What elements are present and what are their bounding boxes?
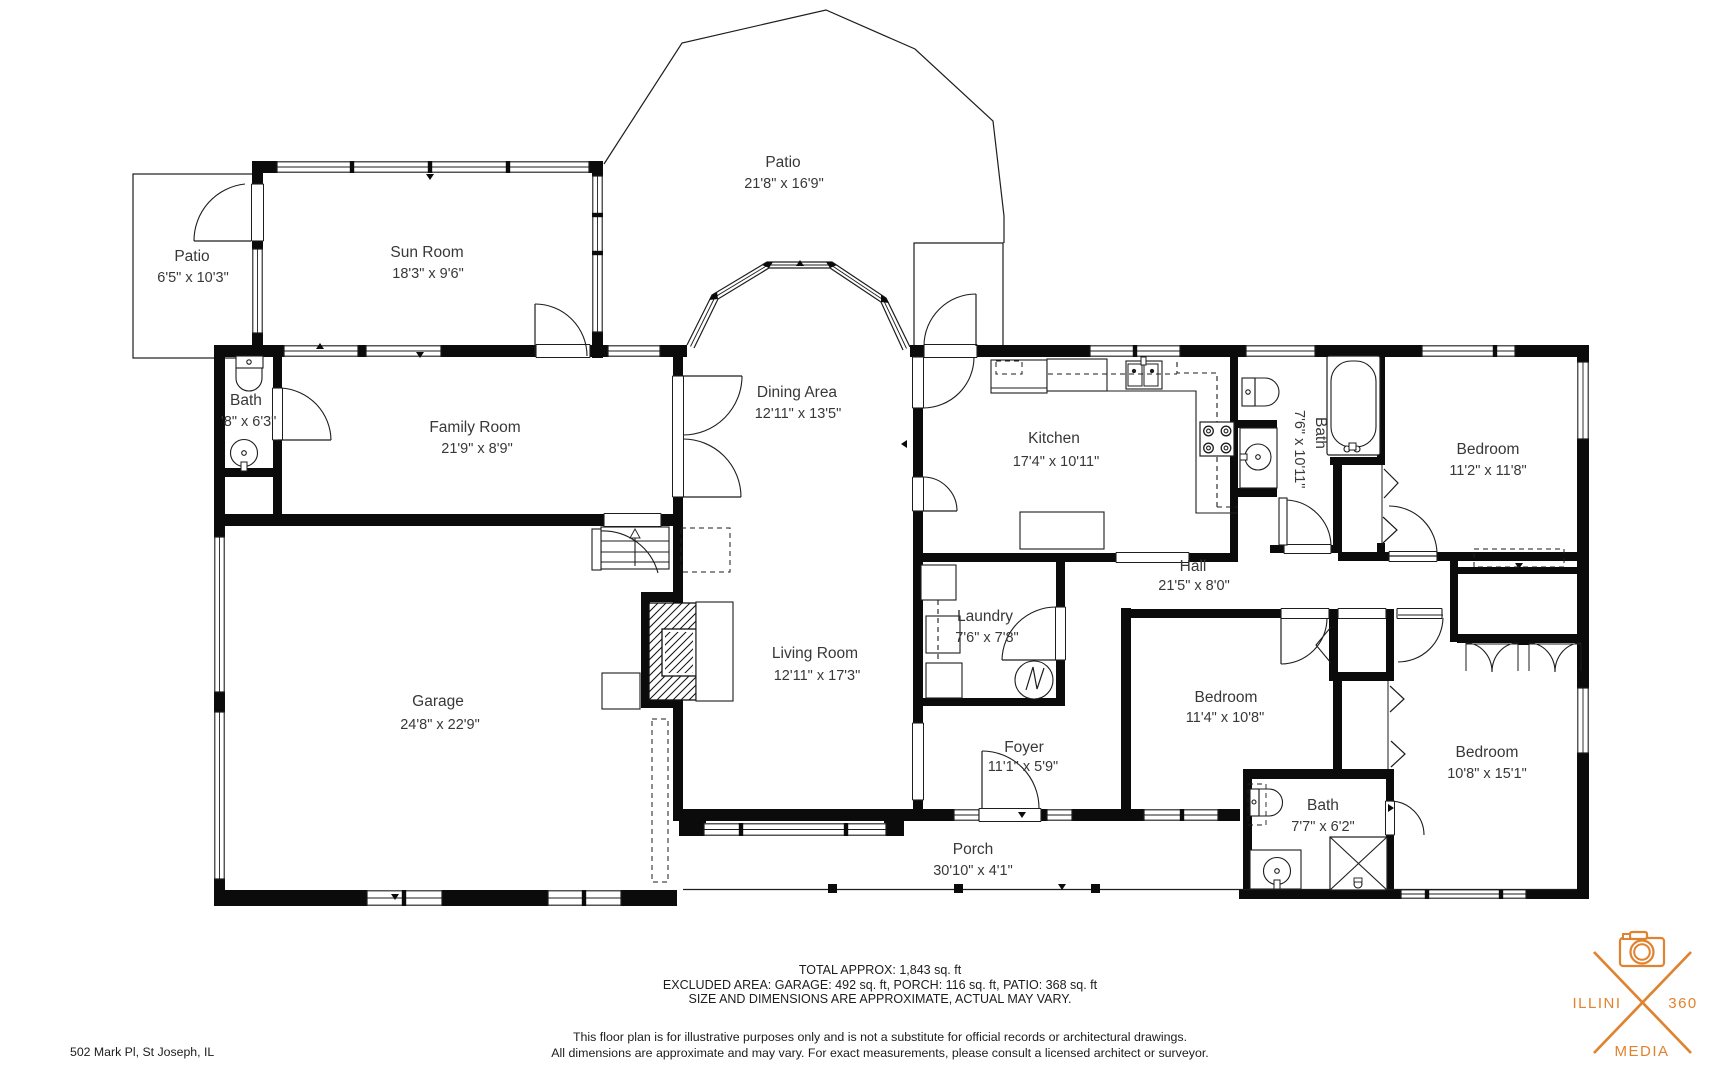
svg-text:6'5" x 10'3": 6'5" x 10'3" <box>157 270 228 286</box>
svg-text:Sun Room: Sun Room <box>390 244 463 261</box>
svg-text:TOTAL APPROX: 1,843 sq. ft: TOTAL APPROX: 1,843 sq. ft <box>799 963 962 977</box>
svg-text:18'3" x 9'6": 18'3" x 9'6" <box>392 266 463 282</box>
svg-text:'8" x 6'3": '8" x 6'3" <box>221 414 276 430</box>
svg-text:7'7" x 6'2": 7'7" x 6'2" <box>1291 819 1354 835</box>
svg-text:Patio: Patio <box>765 154 800 171</box>
svg-text:EXCLUDED AREA: GARAGE: 492 sq.: EXCLUDED AREA: GARAGE: 492 sq. ft, PORCH… <box>663 978 1098 992</box>
svg-text:17'4" x 10'11": 17'4" x 10'11" <box>1013 454 1100 470</box>
svg-text:SIZE AND DIMENSIONS ARE APPROX: SIZE AND DIMENSIONS ARE APPROXIMATE, ACT… <box>689 992 1072 1006</box>
svg-text:Laundry: Laundry <box>957 608 1013 625</box>
svg-text:ILLINI: ILLINI <box>1572 995 1621 1012</box>
svg-text:21'9" x 8'9": 21'9" x 8'9" <box>441 441 512 457</box>
svg-text:10'8" x 15'1": 10'8" x 15'1" <box>1447 766 1527 782</box>
svg-text:Porch: Porch <box>953 841 994 858</box>
svg-text:7'6" x 10'11": 7'6" x 10'11" <box>1291 410 1307 488</box>
svg-text:Garage: Garage <box>412 693 464 710</box>
svg-text:24'8" x 22'9": 24'8" x 22'9" <box>400 717 480 733</box>
svg-text:21'5" x 8'0": 21'5" x 8'0" <box>1158 578 1229 594</box>
svg-text:Dining Area: Dining Area <box>757 384 838 401</box>
svg-text:21'8" x 16'9": 21'8" x 16'9" <box>744 176 824 192</box>
svg-text:Foyer: Foyer <box>1004 739 1044 756</box>
svg-text:7'6" x 7'8": 7'6" x 7'8" <box>955 630 1018 646</box>
svg-text:Bedroom: Bedroom <box>1457 441 1520 458</box>
svg-text:11'2" x 11'8": 11'2" x 11'8" <box>1449 463 1526 479</box>
svg-text:All dimensions are approximate: All dimensions are approximate and may v… <box>551 1046 1208 1060</box>
svg-text:12'11" x 17'3": 12'11" x 17'3" <box>774 668 861 684</box>
svg-text:11'4" x 10'8": 11'4" x 10'8" <box>1186 710 1264 726</box>
svg-text:Family Room: Family Room <box>429 419 520 436</box>
svg-text:This floor plan is for illustr: This floor plan is for illustrative purp… <box>573 1030 1187 1044</box>
svg-text:30'10" x 4'1": 30'10" x 4'1" <box>933 863 1013 879</box>
svg-text:502 Mark Pl, St Joseph, IL: 502 Mark Pl, St Joseph, IL <box>70 1045 214 1059</box>
svg-text:Bath: Bath <box>1312 417 1329 449</box>
svg-text:Patio: Patio <box>174 248 209 265</box>
svg-text:Bedroom: Bedroom <box>1195 689 1258 706</box>
svg-text:12'11" x 13'5": 12'11" x 13'5" <box>755 406 842 422</box>
svg-text:360: 360 <box>1668 995 1698 1012</box>
svg-text:Kitchen: Kitchen <box>1028 430 1080 447</box>
svg-text:Bedroom: Bedroom <box>1456 744 1519 761</box>
svg-text:MEDIA: MEDIA <box>1614 1043 1669 1060</box>
svg-text:Bath: Bath <box>1307 797 1339 814</box>
svg-text:11'1" x 5'9": 11'1" x 5'9" <box>988 759 1058 775</box>
svg-text:Hall: Hall <box>1180 558 1207 575</box>
svg-text:Bath: Bath <box>230 392 262 409</box>
svg-text:Living Room: Living Room <box>772 645 858 662</box>
